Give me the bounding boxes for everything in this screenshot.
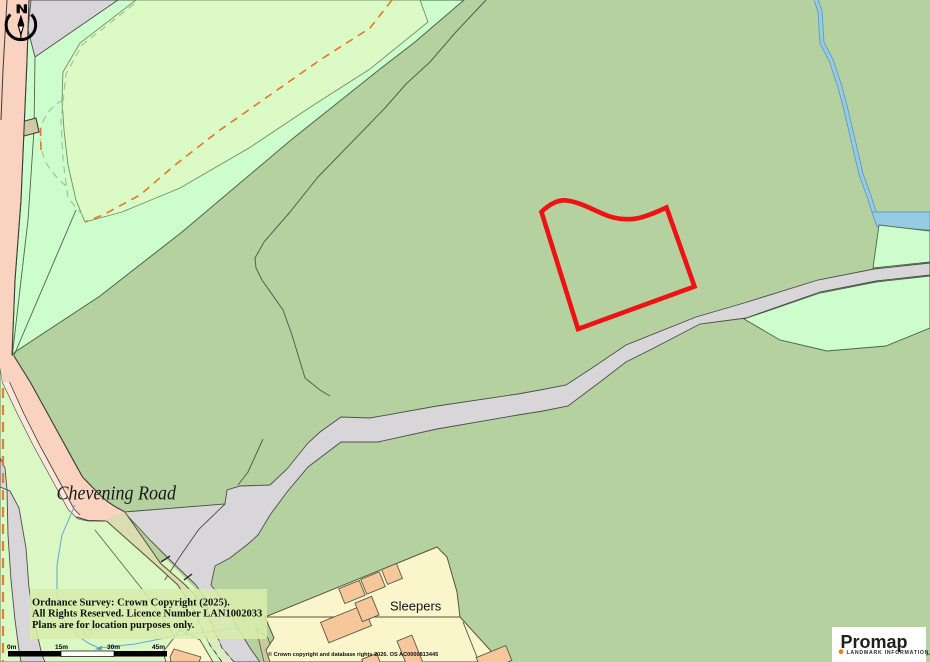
svg-text:Ordnance Survey: Crown Copyrig: Ordnance Survey: Crown Copyright (2025).: [32, 597, 230, 608]
svg-text:30m: 30m: [107, 644, 120, 651]
svg-text:Sleepers: Sleepers: [390, 599, 442, 614]
svg-text:© Crown copyright and database: © Crown copyright and database rights 20…: [268, 651, 438, 658]
svg-text:45m: 45m: [152, 644, 165, 651]
svg-text:Chevening Road: Chevening Road: [57, 483, 177, 504]
svg-text:All Rights Reserved. Licence N: All Rights Reserved. Licence Number LAN1…: [32, 609, 262, 620]
svg-text:Plans are for location purpose: Plans are for location purposes only.: [32, 620, 195, 631]
svg-text:15m: 15m: [55, 644, 68, 651]
svg-text:0m: 0m: [7, 644, 17, 651]
svg-text:LANDMARK INFORMATION: LANDMARK INFORMATION: [847, 650, 930, 656]
